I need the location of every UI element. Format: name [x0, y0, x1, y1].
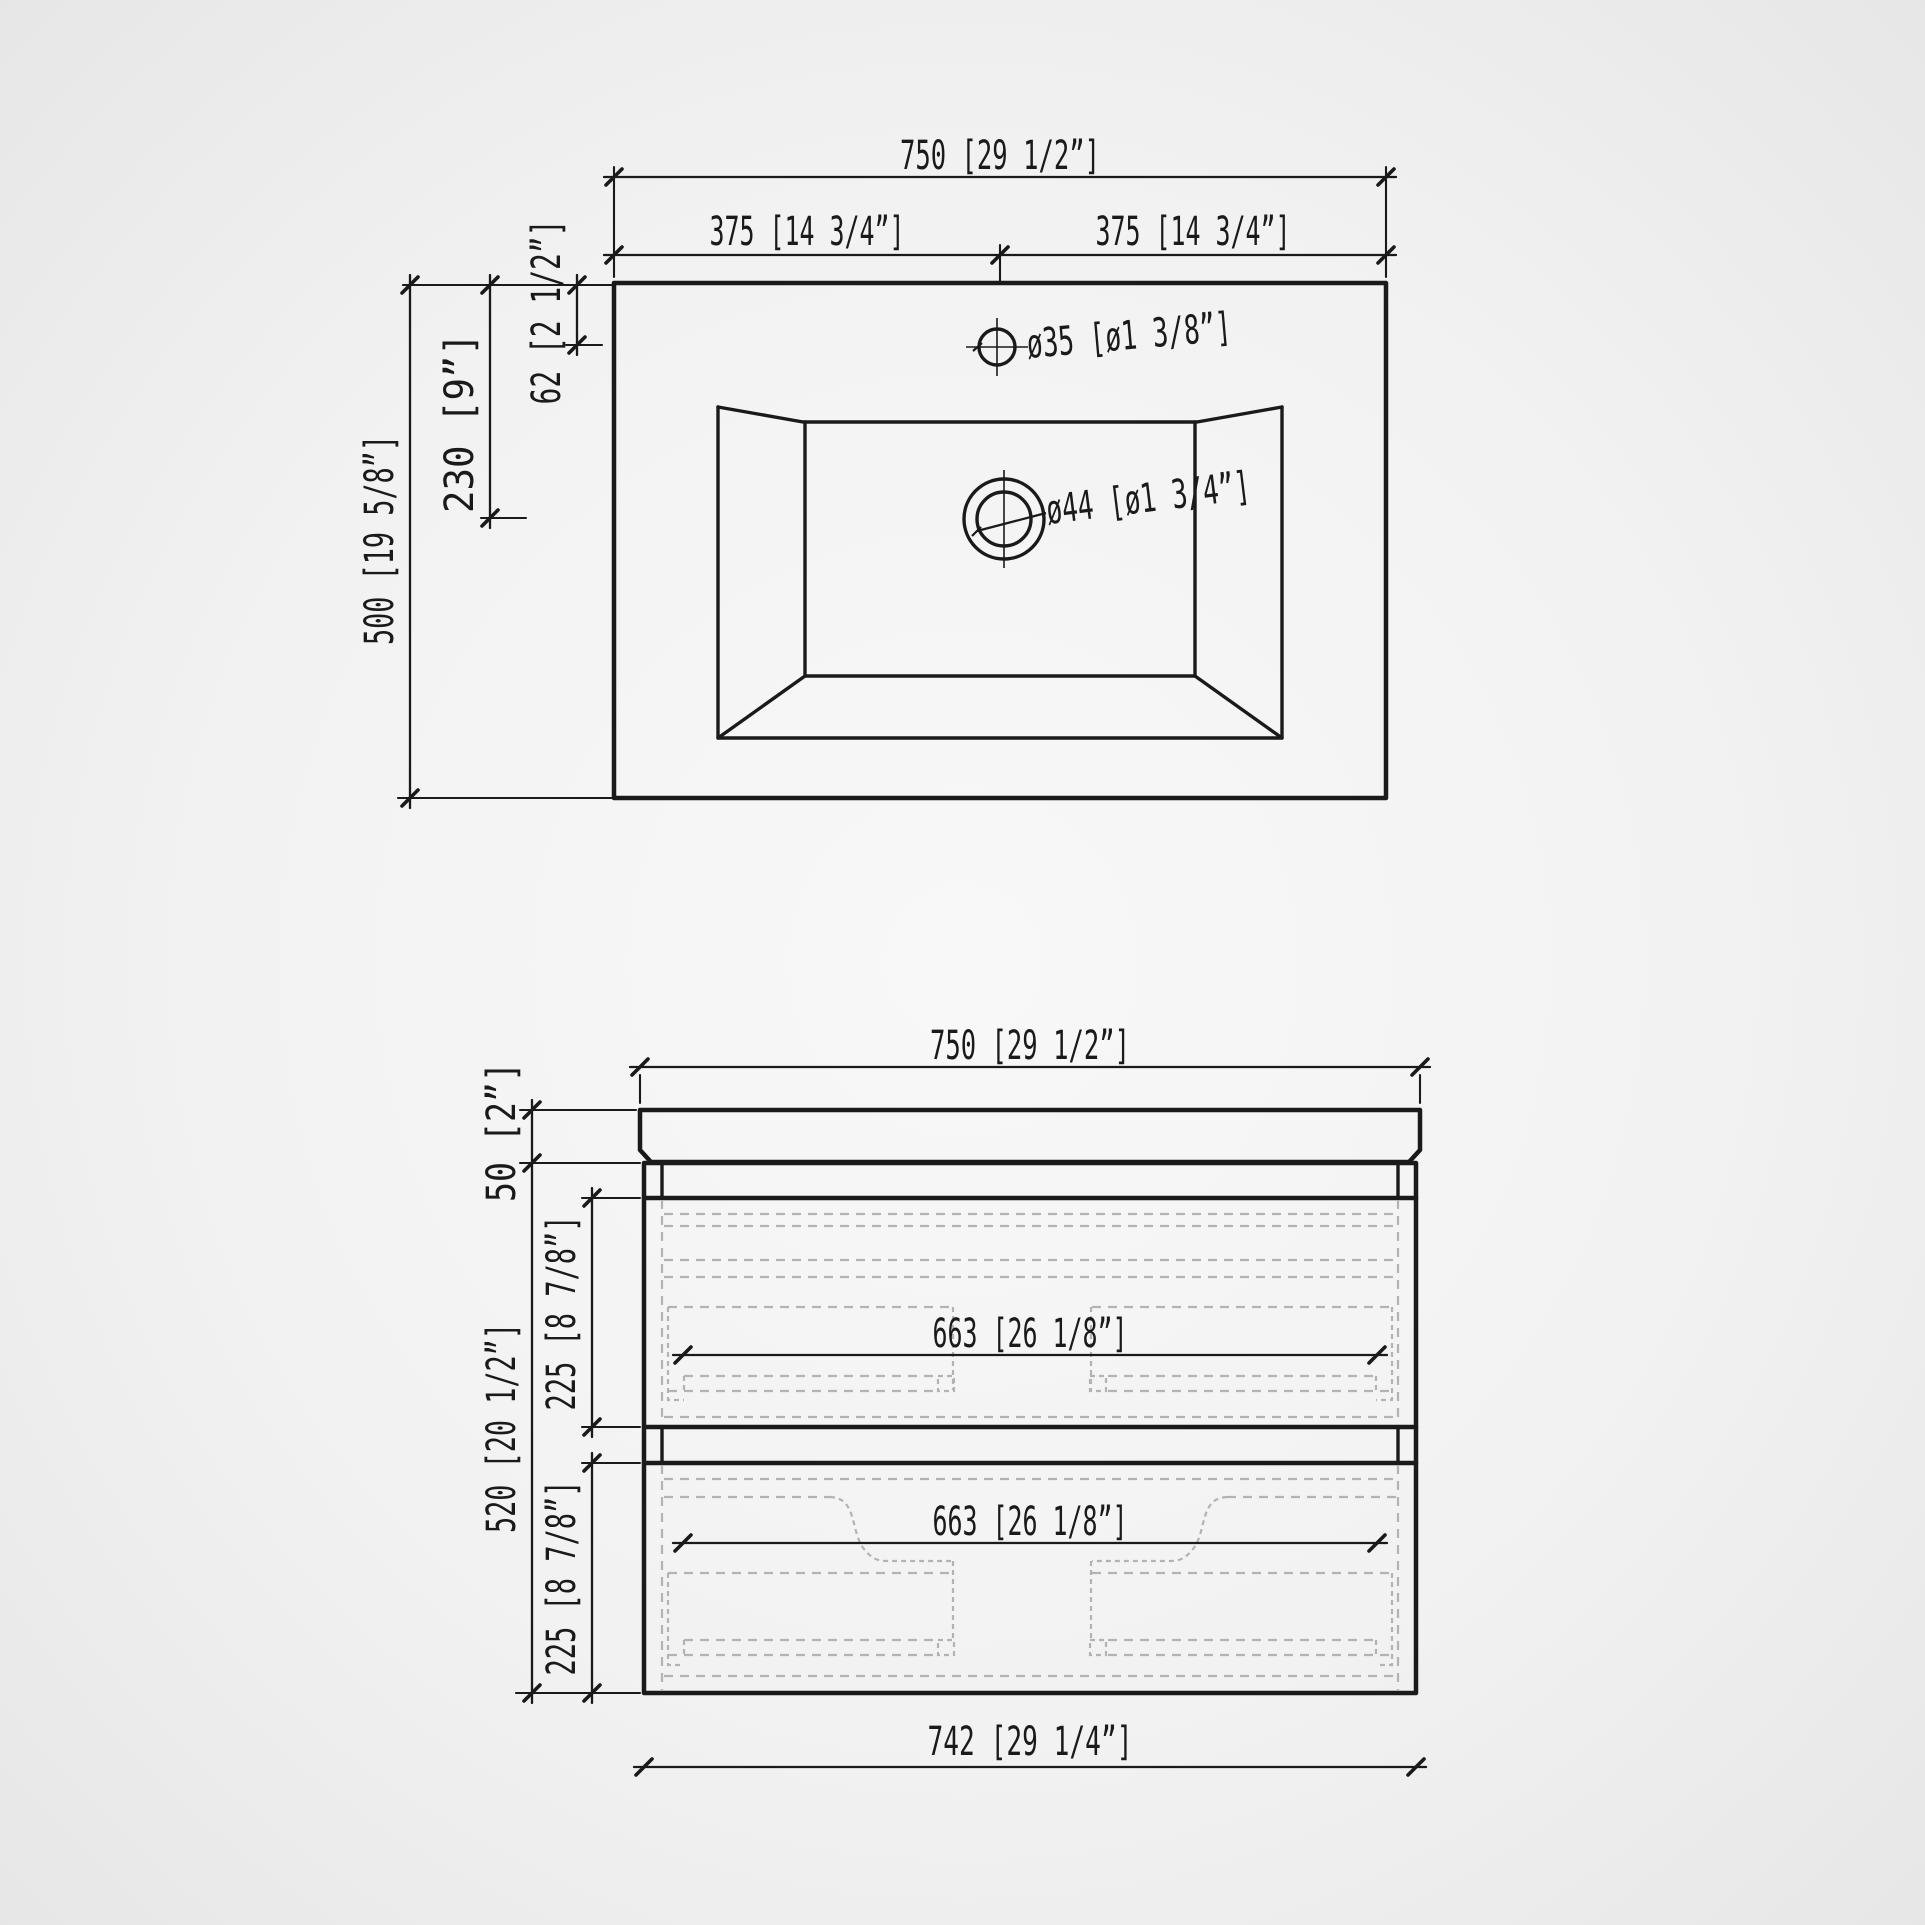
- paper-background: [0, 0, 1925, 1925]
- dimension-text: 663 [26 1/8”]: [933, 1311, 1128, 1357]
- drawer1-height-text: 225 [8 7/8”]: [539, 1216, 585, 1411]
- dimension-text: 750 [29 1/2”]: [900, 133, 1100, 179]
- vanity-technical-drawing: ø35 [ø1 3/8”] ø44 [ø1 3/4”] 750 [29 1/2”…: [0, 0, 1925, 1925]
- dimension-text: 742 [29 1/4”]: [928, 1719, 1133, 1765]
- drawer2-height-text: 225 [8 7/8”]: [539, 1481, 585, 1676]
- countertop-thickness-text: 50 [2”]: [479, 1062, 525, 1202]
- dimension-text-left: 375 [14 3/4”]: [710, 209, 905, 255]
- dimension-text: 62 [2 1/2”]: [524, 220, 570, 405]
- dimension-text: 663 [26 1/8”]: [933, 1499, 1128, 1545]
- dimension-text-right: 375 [14 3/4”]: [1096, 209, 1291, 255]
- dimension-text: 500 [19 5/8”]: [357, 435, 403, 645]
- dimension-text: 750 [29 1/2”]: [930, 1023, 1130, 1069]
- drawing-sheet: ø35 [ø1 3/8”] ø44 [ø1 3/4”] 750 [29 1/2”…: [0, 0, 1925, 1925]
- dimension-text: 230 [9”]: [437, 333, 483, 513]
- cabinet-height-text: 520 [20 1/2”]: [479, 1323, 525, 1533]
